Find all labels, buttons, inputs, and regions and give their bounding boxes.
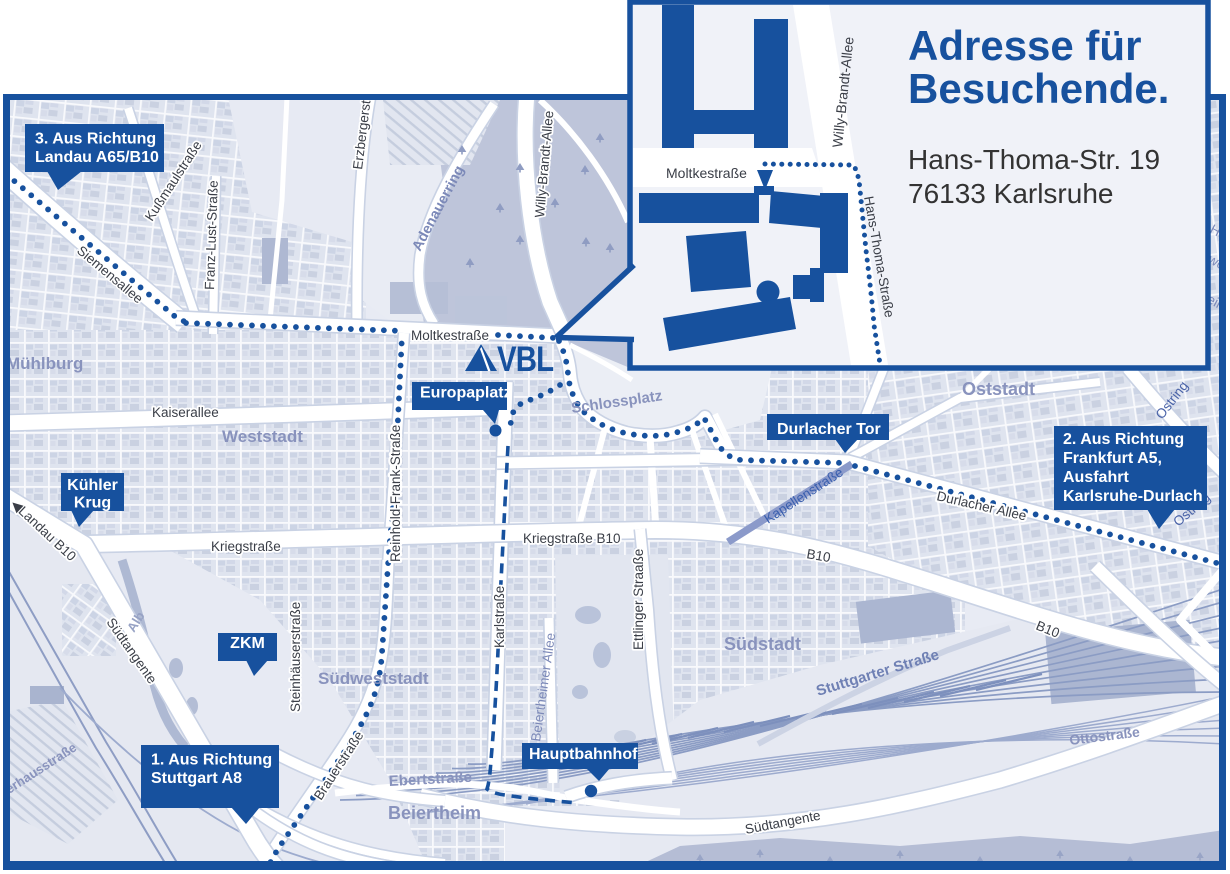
svg-text:Krug: Krug [74, 495, 111, 512]
svg-text:Ettlinger Straaße: Ettlinger Straaße [631, 549, 646, 650]
svg-text:Frankfurt A5,: Frankfurt A5, [1063, 450, 1162, 467]
svg-text:Oststadt: Oststadt [962, 379, 1035, 399]
svg-text:Europaplatz: Europaplatz [420, 385, 512, 402]
svg-text:Beiertheim: Beiertheim [388, 803, 481, 823]
svg-text:Kühler: Kühler [67, 477, 118, 494]
svg-text:Besuchende.: Besuchende. [908, 65, 1169, 112]
svg-text:Durlacher Tor: Durlacher Tor [777, 421, 881, 438]
svg-text:Südweststadt: Südweststadt [318, 669, 429, 688]
svg-text:Moltkestraße: Moltkestraße [411, 328, 489, 343]
svg-text:Landau A65/B10: Landau A65/B10 [35, 149, 159, 166]
svg-text:Stuttgart A8: Stuttgart A8 [151, 770, 242, 787]
svg-text:Südstadt: Südstadt [724, 634, 801, 654]
svg-text:VBL: VBL [497, 340, 553, 379]
svg-text:Mühlburg: Mühlburg [6, 354, 83, 373]
svg-text:Ausfahrt: Ausfahrt [1063, 469, 1129, 486]
svg-text:Kriegstraße: Kriegstraße [211, 539, 281, 554]
svg-text:Kaiserallee: Kaiserallee [152, 405, 219, 420]
svg-text:Hauptbahnhof: Hauptbahnhof [529, 746, 638, 763]
svg-text:Weststadt: Weststadt [222, 427, 303, 446]
svg-text:1. Aus Richtung: 1. Aus Richtung [151, 752, 272, 769]
svg-text:76133 Karlsruhe: 76133 Karlsruhe [908, 178, 1113, 209]
svg-text:ZKM: ZKM [230, 635, 265, 652]
svg-text:Moltkestraße: Moltkestraße [666, 165, 747, 181]
svg-text:2. Aus Richtung: 2. Aus Richtung [1063, 431, 1184, 448]
svg-text:Karlsruhe-Durlach: Karlsruhe-Durlach [1063, 488, 1203, 505]
svg-text:Steinhäuserstraße: Steinhäuserstraße [288, 602, 303, 712]
svg-text:Adresse für: Adresse für [908, 22, 1141, 69]
svg-text:Karlstraße: Karlstraße [492, 586, 507, 648]
svg-text:3. Aus Richtung: 3. Aus Richtung [35, 131, 156, 148]
svg-text:Kriegstraße B10: Kriegstraße B10 [523, 531, 621, 546]
svg-text:Reinhold-Frank-Straße: Reinhold-Frank-Straße [388, 425, 403, 562]
svg-text:Hans-Thoma-Str. 19: Hans-Thoma-Str. 19 [908, 144, 1160, 175]
